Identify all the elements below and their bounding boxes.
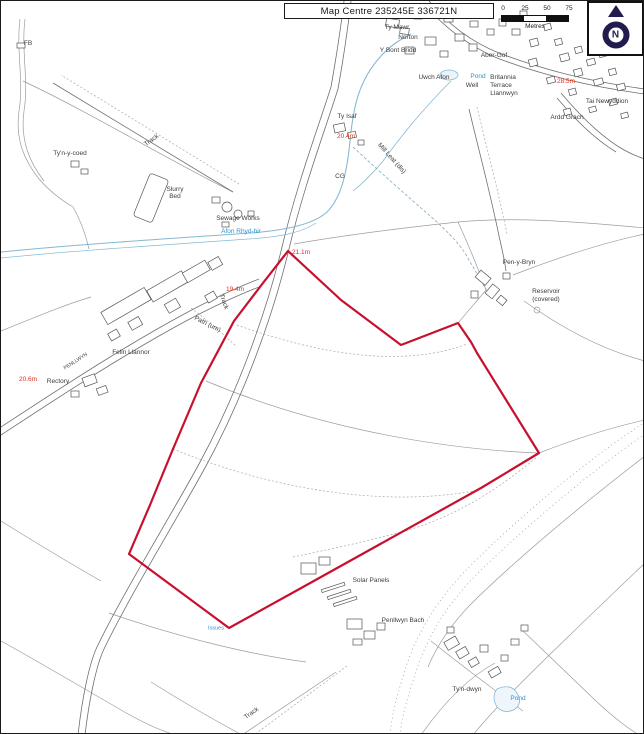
north-arrow-icon [608, 5, 624, 17]
scale-tick-0: 0 [501, 5, 505, 12]
scale-bar-segments [501, 15, 569, 22]
scale-segment-dark [546, 16, 568, 21]
scale-bar: 0255075 Metres [501, 5, 581, 30]
map-title-box: Map Centre 235245E 336721N [284, 3, 494, 19]
dashed-paths [61, 75, 537, 734]
scale-unit-label: Metres [501, 23, 569, 30]
north-arrow: N [587, 1, 644, 56]
mill-leat-line [353, 147, 487, 291]
north-label: N [612, 30, 619, 41]
scale-tick-50: 50 [543, 5, 550, 12]
scale-segment-dark [502, 16, 524, 21]
pond-north [440, 70, 458, 80]
map-linework [1, 1, 644, 734]
roads [1, 1, 644, 734]
scale-tick-75: 75 [565, 5, 572, 12]
scale-segment-light [524, 16, 546, 21]
scale-tick-25: 25 [521, 5, 528, 12]
scale-tick-labels: 0255075 [501, 5, 581, 13]
field-boundaries [1, 81, 644, 734]
compass-icon: N [602, 22, 629, 49]
map-page: FBPentrefelinTy MawrNortonY Bont BriddUw… [0, 0, 644, 734]
site-boundary [129, 251, 539, 628]
map-title: Map Centre 235245E 336721N [321, 6, 458, 17]
pond-south [494, 687, 520, 712]
